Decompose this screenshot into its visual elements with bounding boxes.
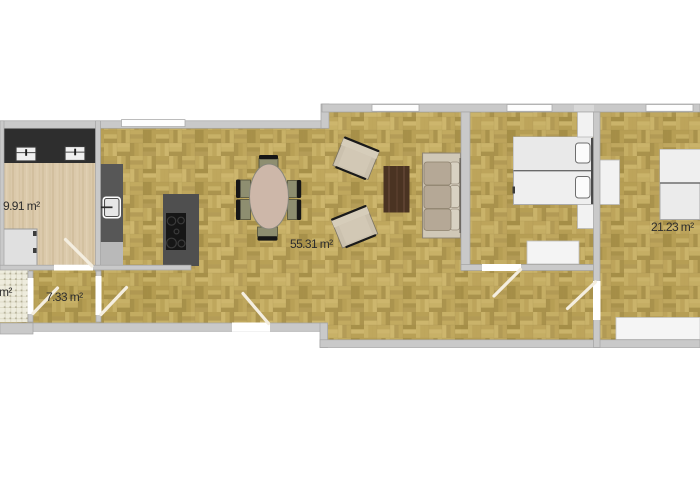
- svg-text:55.31 m²: 55.31 m²: [290, 237, 333, 251]
- svg-text:9.91 m²: 9.91 m²: [3, 199, 40, 213]
- svg-text:7.33 m²: 7.33 m²: [46, 290, 83, 304]
- svg-text:21.23 m²: 21.23 m²: [651, 220, 694, 234]
- svg-text:m²: m²: [0, 285, 12, 299]
